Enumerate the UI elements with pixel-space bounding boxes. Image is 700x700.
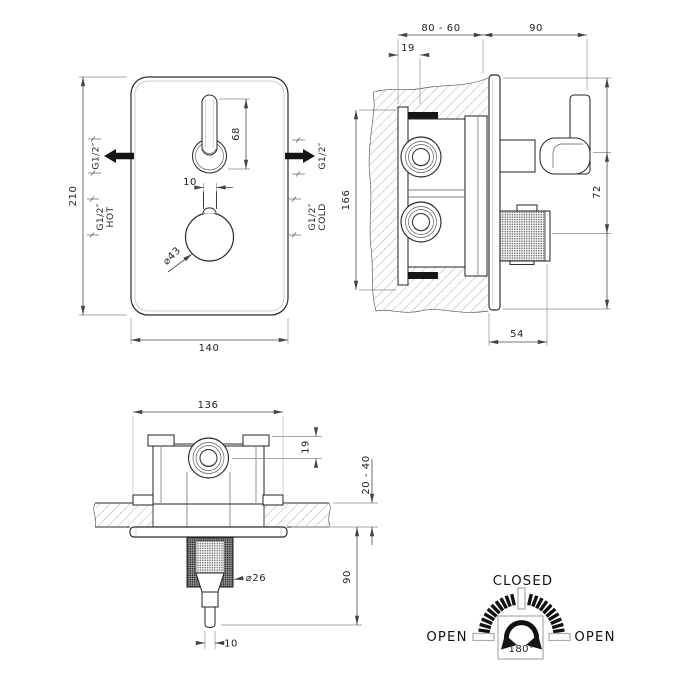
dim-protrusion-bottom-label: 90 bbox=[342, 570, 353, 584]
inlet-cold: G1/2″ COLD bbox=[289, 197, 328, 238]
open-left-marker bbox=[473, 634, 494, 641]
dim-handle-width-label: 10 bbox=[224, 639, 238, 650]
outlet-arrow-left: G1/2″ bbox=[88, 137, 134, 176]
technical-drawing-canvas: 210 140 bbox=[0, 0, 700, 700]
inlet-port-top bbox=[401, 137, 441, 177]
hot-label: HOT bbox=[105, 207, 116, 228]
dial-tick bbox=[482, 619, 493, 624]
dim-body-height-label: 166 bbox=[341, 190, 352, 211]
flow-arrow-left-icon bbox=[104, 149, 134, 163]
dial-tick bbox=[480, 624, 491, 627]
dial-tick bbox=[529, 594, 532, 605]
open-right-label: OPEN bbox=[574, 630, 615, 645]
dim-width-label: 140 bbox=[199, 343, 220, 354]
outlet-arrow-right: G1/2″ bbox=[285, 138, 328, 177]
dim-stem-label: 10 bbox=[183, 177, 197, 188]
dim-protrusion-bottom: 90 bbox=[221, 527, 362, 625]
cold-label: COLD bbox=[317, 203, 328, 230]
front-view: 210 140 bbox=[68, 77, 396, 354]
trim-plate-bottom bbox=[130, 527, 287, 537]
dim-depth-range-label: 80 - 60 bbox=[421, 23, 460, 34]
outlet-port-bottom bbox=[189, 438, 229, 478]
inlet-port-bottom bbox=[401, 202, 441, 242]
dial-tick bbox=[553, 630, 564, 632]
dim-wall-range-label: 20 - 40 bbox=[361, 455, 372, 494]
rough-in-body-side bbox=[398, 107, 487, 285]
dim-protrusion-side-label: 90 bbox=[529, 23, 543, 34]
technical-drawing-page: 210 140 bbox=[0, 0, 700, 700]
diverter-lever-side bbox=[500, 95, 590, 174]
dim-lever-label: 68 bbox=[231, 127, 242, 141]
closed-label: CLOSED bbox=[493, 574, 554, 589]
dial-tick bbox=[512, 594, 515, 605]
dim-knob-diameter-bottom: ⌀26 bbox=[234, 573, 266, 584]
dim-overall-height: 210 bbox=[68, 77, 127, 315]
bottom-view: 136 19 20 - 40 90 ⌀26 bbox=[94, 400, 378, 650]
dim-plate-offset-label: 19 bbox=[401, 43, 415, 54]
open-left-label: OPEN bbox=[426, 630, 467, 645]
rotation-diagram: CLOSED OPEN OPEN 180° bbox=[426, 574, 615, 659]
dial-tick bbox=[533, 596, 537, 607]
outlet-right-label: G1/2″ bbox=[317, 142, 328, 170]
dial-tick bbox=[479, 630, 490, 632]
side-view: 80 - 60 90 19 72 54 bbox=[369, 23, 611, 346]
closed-position-marker bbox=[518, 588, 525, 609]
knob-and-lever-bottom bbox=[187, 538, 233, 628]
flow-arrow-right-icon bbox=[285, 149, 315, 163]
knob-diameter-bottom-label: ⌀26 bbox=[246, 573, 266, 584]
dim-handle-spacing: 72 bbox=[503, 78, 611, 309]
dim-port-offset-label: 19 bbox=[301, 440, 312, 454]
rotation-angle-label: 180° bbox=[508, 644, 534, 655]
dim-height-label: 210 bbox=[68, 186, 79, 207]
dial-tick bbox=[506, 596, 510, 607]
dial-tick bbox=[552, 624, 563, 627]
dim-body-width-label: 136 bbox=[198, 400, 219, 411]
temperature-knob-side bbox=[500, 205, 550, 265]
outlet-left-label: G1/2″ bbox=[91, 142, 102, 170]
dim-handle-width-bottom: 10 bbox=[197, 631, 238, 650]
dim-overall-width: 140 bbox=[131, 318, 288, 354]
dim-wall-range: 20 - 40 bbox=[291, 455, 378, 545]
inlet-hot: G1/2″ HOT bbox=[87, 197, 116, 238]
open-right-marker bbox=[549, 634, 570, 641]
dim-knob-depth-label: 54 bbox=[510, 329, 524, 340]
dim-handle-spacing-label: 72 bbox=[592, 185, 603, 199]
dial-tick bbox=[551, 619, 562, 624]
trim-plate-side bbox=[489, 75, 500, 310]
